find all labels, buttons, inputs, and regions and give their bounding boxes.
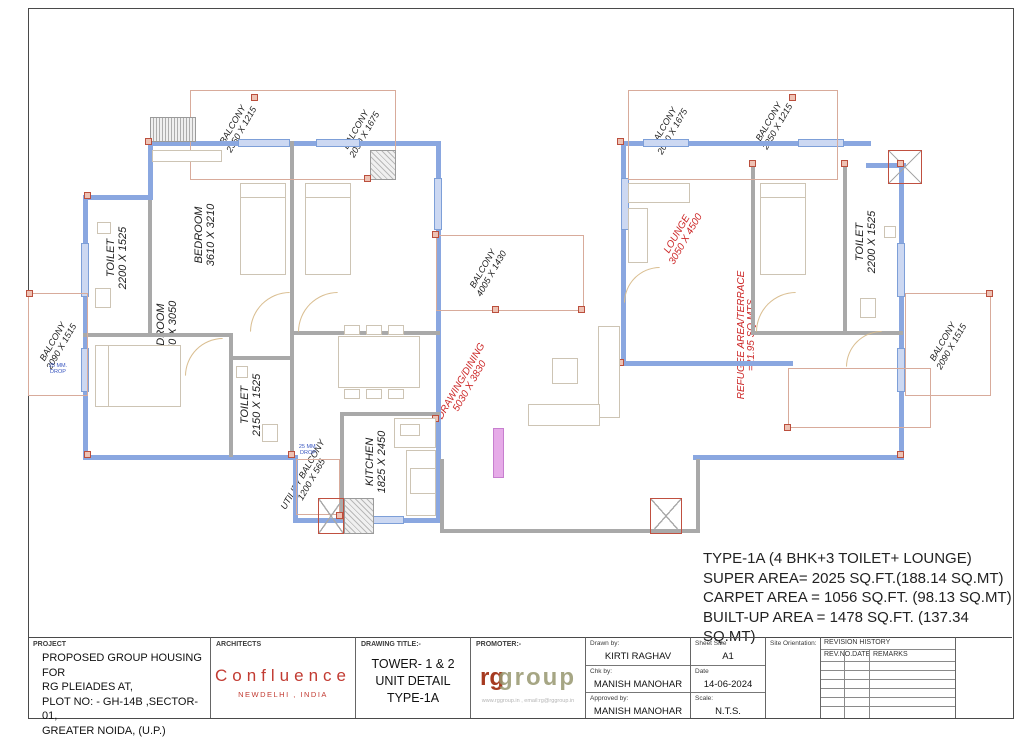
exterior-wall xyxy=(693,455,904,460)
promoter-website: www.rggroup.in , email:rg@rggroup.in xyxy=(471,698,585,704)
titleblock-drawing-title: DRAWING TITLE:- TOWER- 1 & 2 UNIT DETAIL… xyxy=(355,637,470,718)
revision-empty-row xyxy=(821,671,955,680)
drawing-sheet: { "areas": { "lines": [ "TYPE-1A (4 BHK+… xyxy=(0,0,1024,723)
column-marker xyxy=(288,451,295,458)
exterior-wall xyxy=(621,361,793,366)
revision-title: REVISION HISTORY xyxy=(821,638,955,650)
stair-hatch xyxy=(150,117,196,142)
room-label-toilet-right: TOILET 2200 X 1525 xyxy=(854,172,878,312)
titleblock-project: PROJECT PROPOSED GROUP HOUSING FOR RG PL… xyxy=(28,637,210,718)
column-marker xyxy=(336,512,343,519)
room-name: TOILET xyxy=(239,386,251,424)
revision-header-row: REV.NO.DATE REMARKS xyxy=(821,650,955,662)
promoter-label: PROMOTER:- xyxy=(476,641,521,648)
furniture xyxy=(628,183,690,203)
chk-by-value: MANISH MANOHAR xyxy=(586,679,690,690)
column-marker xyxy=(986,290,993,297)
project-line: GREATER NOIDA, (U.P.) xyxy=(42,724,210,738)
titleblock-meta: Sheet Size A1 Date 14-06-2024 Scale: N.T… xyxy=(690,637,765,718)
date-value: 14-06-2024 xyxy=(691,679,765,690)
column-marker xyxy=(145,138,152,145)
furniture xyxy=(366,389,382,399)
architects-label: ARCHITECTS xyxy=(216,641,261,648)
area-summary: TYPE-1A (4 BHK+3 TOILET+ LOUNGE) SUPER A… xyxy=(703,549,1024,647)
furniture-line xyxy=(108,345,109,407)
revision-empty-row xyxy=(821,689,955,698)
furniture xyxy=(628,208,648,263)
interior-wall xyxy=(696,459,700,533)
titleblock-architects: ARCHITECTS Confluence NEWDELHI , INDIA xyxy=(210,637,355,718)
drawn-by-row: Drawn by: KIRTI RAGHAV xyxy=(586,638,690,665)
architects-location: NEWDELHI , INDIA xyxy=(211,690,355,699)
drawing-title-label: DRAWING TITLE:- xyxy=(361,641,421,648)
room-label-bedroom-1: BEDROOM 3610 X 3210 xyxy=(193,165,217,305)
interior-wall xyxy=(843,163,847,335)
balcony-outline xyxy=(436,235,584,311)
drawing-title-line: TYPE-1A xyxy=(356,690,470,707)
project-label: PROJECT xyxy=(33,641,66,648)
date-row: Date 14-06-2024 xyxy=(691,665,765,693)
furniture xyxy=(236,366,248,378)
furniture xyxy=(884,226,896,238)
scale-label: Scale: xyxy=(695,695,713,702)
column-marker xyxy=(841,160,848,167)
balcony-outline xyxy=(788,368,931,428)
room-dims: 2200 X 1525 xyxy=(117,227,129,289)
window xyxy=(434,178,442,230)
column-marker xyxy=(784,424,791,431)
door-swing-arc xyxy=(298,292,338,332)
furniture xyxy=(338,336,420,388)
column-marker xyxy=(364,175,371,182)
project-line: PROPOSED GROUP HOUSING FOR xyxy=(42,651,210,680)
room-dims: 3610 X 3210 xyxy=(205,204,217,266)
titleblock-site-orientation: Site Orientation: xyxy=(765,637,820,718)
project-line: RG PLEIADES AT, xyxy=(42,680,210,695)
drawing-title-line: UNIT DETAIL xyxy=(356,673,470,690)
furniture xyxy=(400,424,420,436)
revision-divider xyxy=(869,650,870,718)
interior-wall xyxy=(148,200,152,336)
furniture xyxy=(552,358,578,384)
drawing-title-line: TOWER- 1 & 2 xyxy=(356,656,470,673)
furniture xyxy=(388,389,404,399)
titleblock-people: Drawn by: KIRTI RAGHAV Chk by: MANISH MA… xyxy=(585,637,690,718)
column-marker xyxy=(617,138,624,145)
approved-by-value: MANISH MANOHAR xyxy=(586,706,690,717)
drawn-by-label: Drawn by: xyxy=(590,640,619,647)
column-marker xyxy=(84,192,91,199)
room-dims: 1825 X 2450 xyxy=(376,431,388,493)
super-area-line: SUPER AREA= 2025 SQ.FT.(188.14 SQ.MT) xyxy=(703,569,1024,589)
furniture xyxy=(528,404,600,426)
exterior-wall xyxy=(83,195,153,200)
furniture-line xyxy=(760,197,806,198)
room-name: KITCHEN xyxy=(364,438,376,486)
furniture xyxy=(598,326,620,418)
column-marker xyxy=(897,451,904,458)
furniture xyxy=(344,325,360,335)
door-swing-arc xyxy=(756,292,796,332)
interior-wall xyxy=(83,333,233,337)
revision-empty-row xyxy=(821,662,955,671)
door-swing-arc xyxy=(185,338,223,376)
lift-shaft xyxy=(888,150,922,184)
revision-divider xyxy=(844,650,845,718)
column-marker xyxy=(578,306,585,313)
titleblock-empty-cell xyxy=(955,637,1012,718)
scale-row: Scale: N.T.S. xyxy=(691,692,765,720)
titleblock-revision-history: REVISION HISTORY REV.NO.DATE REMARKS xyxy=(820,637,955,718)
column-marker xyxy=(749,160,756,167)
door-swing-arc xyxy=(846,331,882,367)
sheet-size-label: Sheet Size xyxy=(695,640,726,647)
furniture xyxy=(410,468,436,494)
interior-wall xyxy=(229,335,233,457)
logo-group: group xyxy=(498,664,576,691)
approved-by-row: Approved by: MANISH MANOHAR xyxy=(586,692,690,720)
revision-col-revno-date: REV.NO.DATE xyxy=(824,651,870,658)
room-dims: 2200 X 1525 xyxy=(866,211,878,273)
furniture xyxy=(344,389,360,399)
column-marker xyxy=(492,306,499,313)
shaft-hatch xyxy=(370,150,396,180)
exterior-wall xyxy=(83,455,295,460)
column-marker xyxy=(84,451,91,458)
shaft-hatch xyxy=(344,498,374,534)
type-line: TYPE-1A (4 BHK+3 TOILET+ LOUNGE) xyxy=(703,549,1024,569)
furniture-line xyxy=(240,197,286,198)
window xyxy=(81,243,89,297)
furniture xyxy=(366,325,382,335)
approved-by-label: Approved by: xyxy=(590,695,628,702)
sheet-size-value: A1 xyxy=(691,651,765,662)
titleblock-promoter: PROMOTER:- rggroup www.rggroup.in , emai… xyxy=(470,637,585,718)
furniture xyxy=(388,325,404,335)
project-line: PLOT NO: - GH-14B ,SECTOR- 01, xyxy=(42,695,210,724)
revision-empty-row xyxy=(821,698,955,707)
carpet-area-line: CARPET AREA = 1056 SQ.FT. (98.13 SQ.MT) xyxy=(703,588,1024,608)
interior-wall xyxy=(751,163,755,335)
balcony-outline xyxy=(628,90,838,180)
interior-wall xyxy=(440,459,444,533)
date-label: Date xyxy=(695,668,709,675)
room-name: TOILET xyxy=(105,239,117,277)
interior-wall xyxy=(340,412,440,416)
revision-empty-row xyxy=(821,680,955,689)
scale-value: N.T.S. xyxy=(691,706,765,717)
door-swing-arc xyxy=(624,267,660,303)
door-swing-arc xyxy=(250,292,290,332)
chk-by-row: Chk by: MANISH MANOHAR xyxy=(586,665,690,693)
site-orientation-label: Site Orientation: xyxy=(770,640,817,647)
chk-by-label: Chk by: xyxy=(590,668,612,675)
furniture xyxy=(152,150,222,162)
room-name: TOILET xyxy=(854,223,866,261)
architects-logo: Confluence xyxy=(211,666,355,686)
door-panel xyxy=(493,428,504,478)
furniture xyxy=(95,288,111,308)
furniture-line xyxy=(305,197,351,198)
interior-wall xyxy=(290,335,294,457)
furniture xyxy=(262,424,278,442)
column-marker xyxy=(251,94,258,101)
column-marker xyxy=(26,290,33,297)
window xyxy=(897,243,905,297)
exterior-wall xyxy=(621,263,626,363)
column-marker xyxy=(897,160,904,167)
column-marker xyxy=(432,231,439,238)
furniture xyxy=(860,298,876,318)
sheet-size-row: Sheet Size A1 xyxy=(691,638,765,665)
interior-wall xyxy=(229,356,294,360)
drawn-by-value: KIRTI RAGHAV xyxy=(586,651,690,662)
revision-col-remarks: REMARKS xyxy=(873,651,908,658)
room-name: BEDROOM xyxy=(193,207,205,264)
furniture xyxy=(97,222,111,234)
rg-group-logo: rggroup xyxy=(471,664,585,692)
balcony-outline xyxy=(190,90,396,180)
balcony-outline xyxy=(28,293,88,396)
drop-note: 25 MM. DROP xyxy=(294,444,322,456)
lift-shaft xyxy=(650,498,682,534)
column-marker xyxy=(789,94,796,101)
